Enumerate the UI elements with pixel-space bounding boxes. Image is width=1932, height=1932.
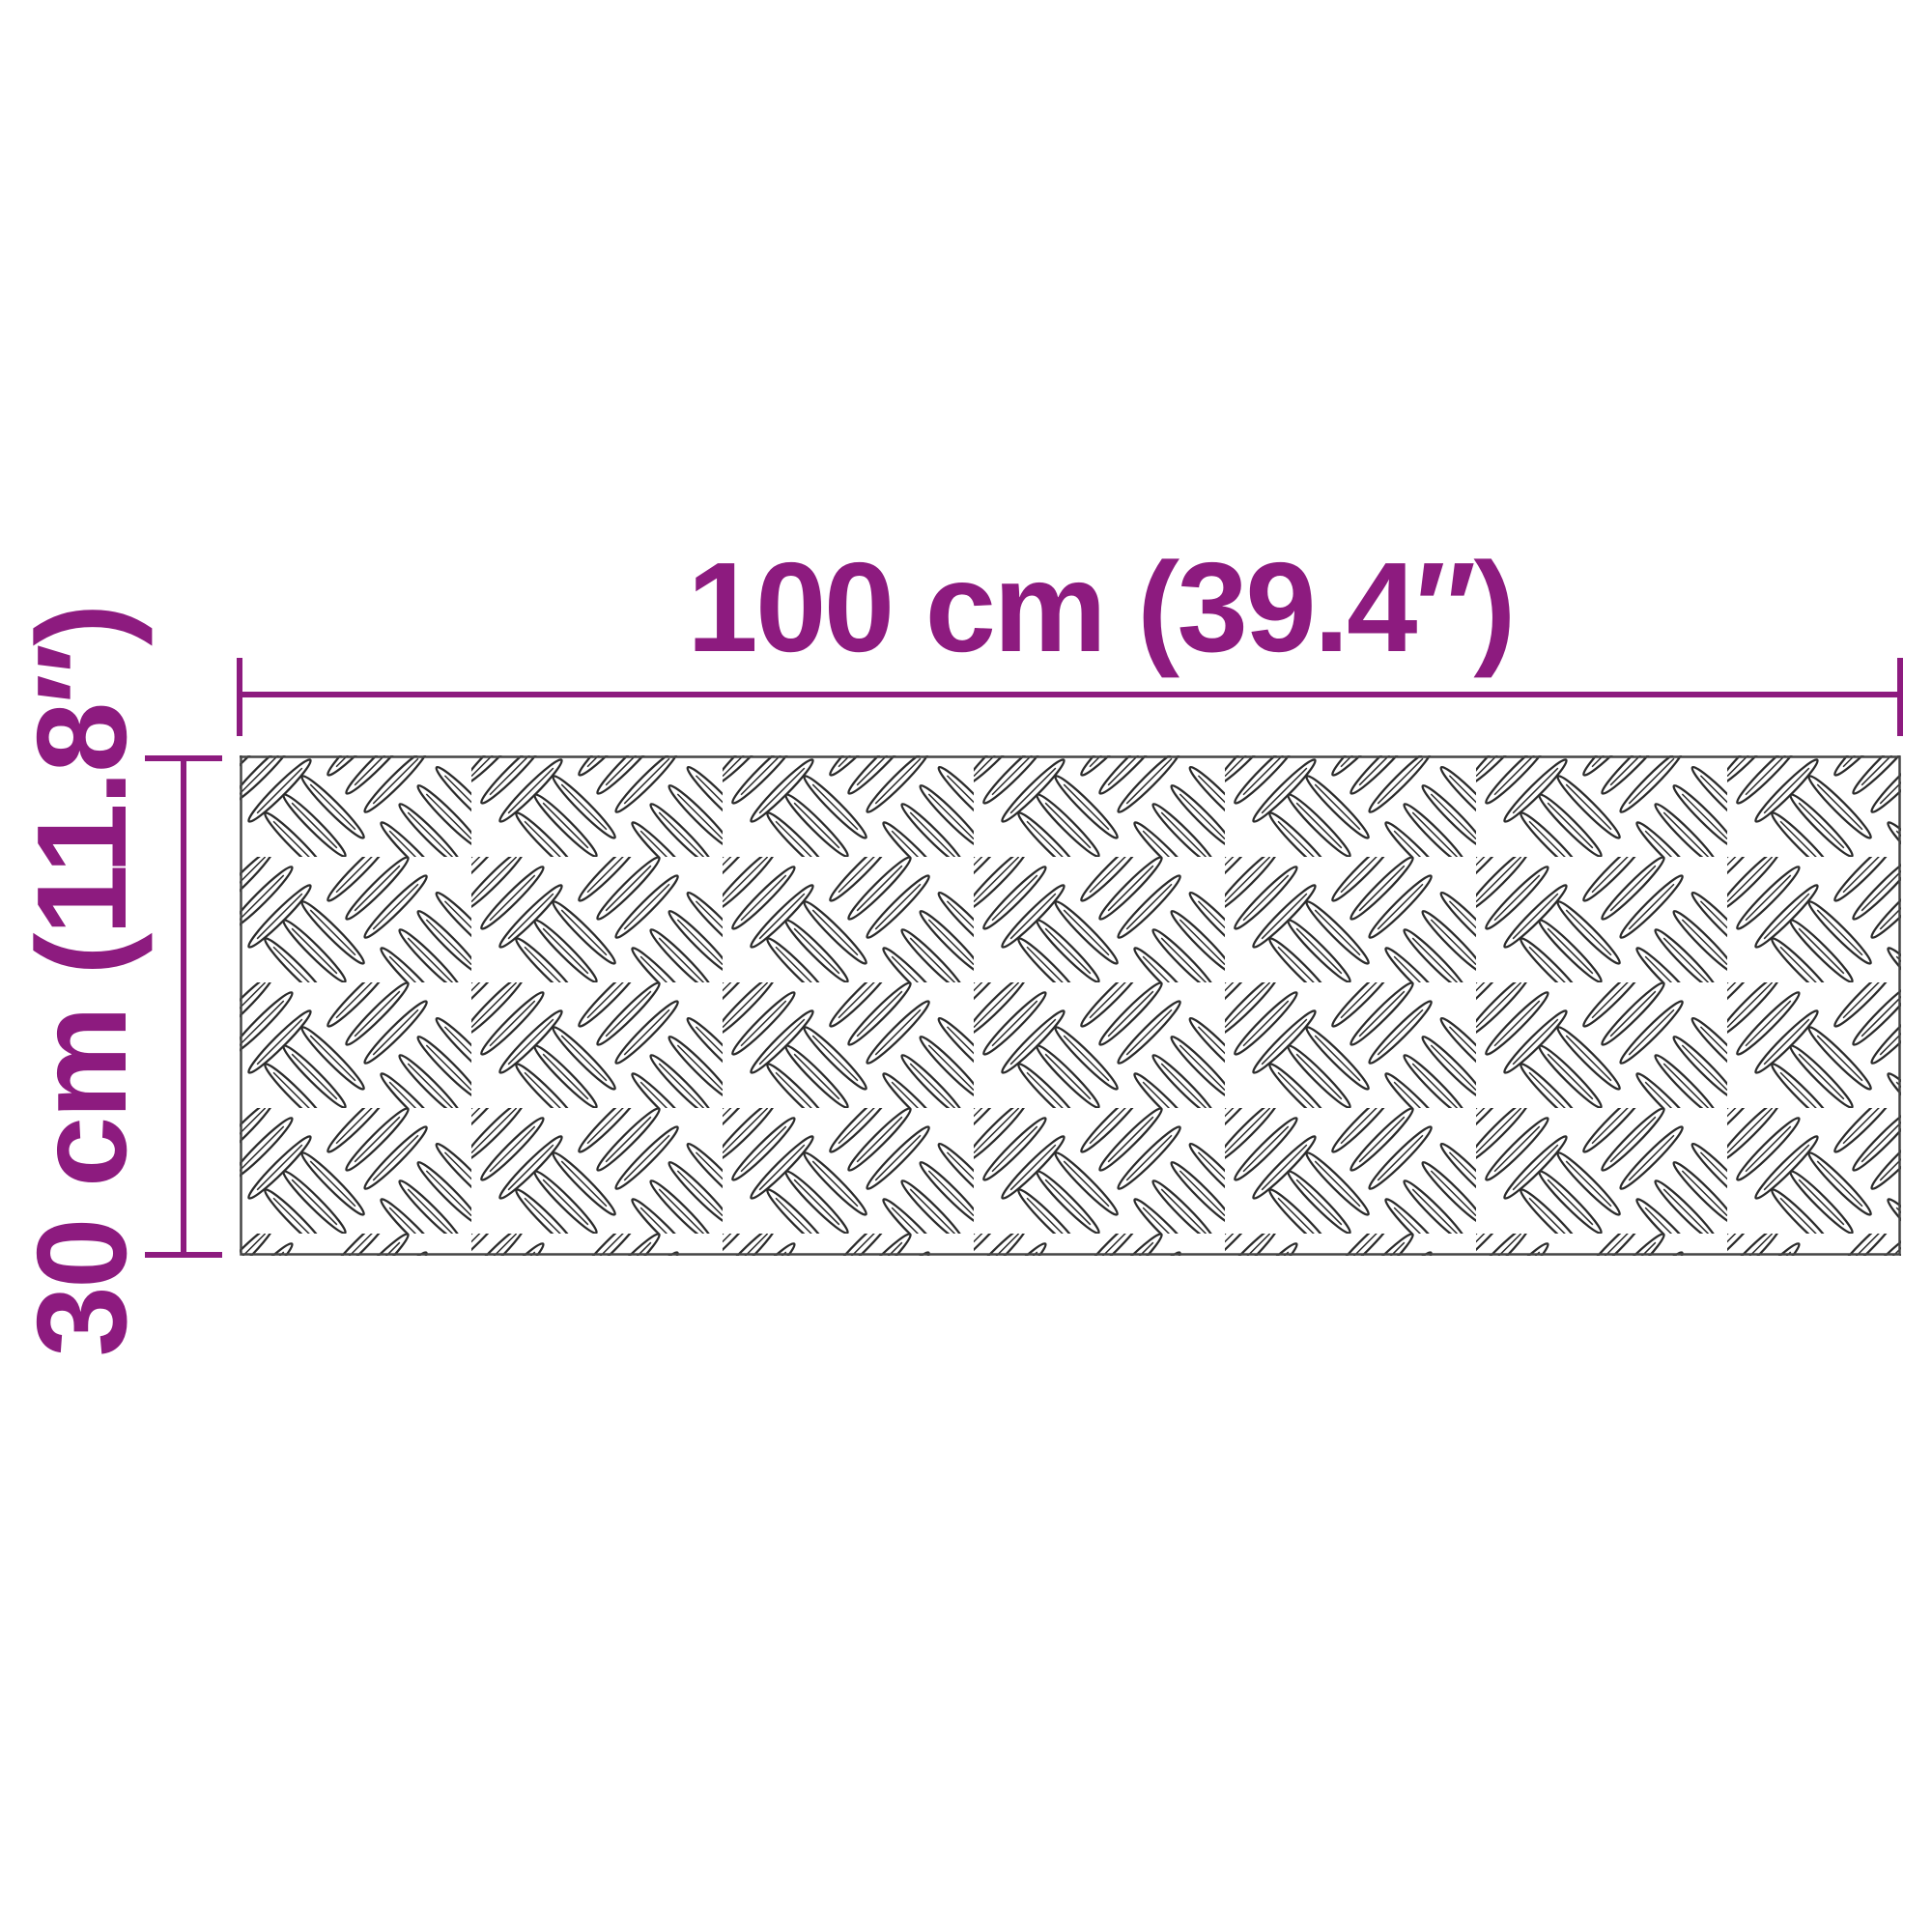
checker-plate-image [240, 755, 1901, 1256]
width-dimension-left-cap [237, 658, 242, 736]
height-dimension-top-cap [145, 755, 222, 761]
width-dimension-right-cap [1897, 658, 1903, 736]
width-dimension-label: 100 cm (39.4″) [687, 544, 1513, 671]
plate-tread-texture [240, 755, 1901, 1256]
dimension-diagram: 100 cm (39.4″) 30 cm (11.8″) [0, 0, 1932, 1932]
height-dimension-label: 30 cm (11.8″) [18, 606, 146, 1356]
width-dimension-line [240, 692, 1900, 697]
height-dimension-bottom-cap [145, 1252, 222, 1258]
height-dimension-line [181, 758, 186, 1258]
